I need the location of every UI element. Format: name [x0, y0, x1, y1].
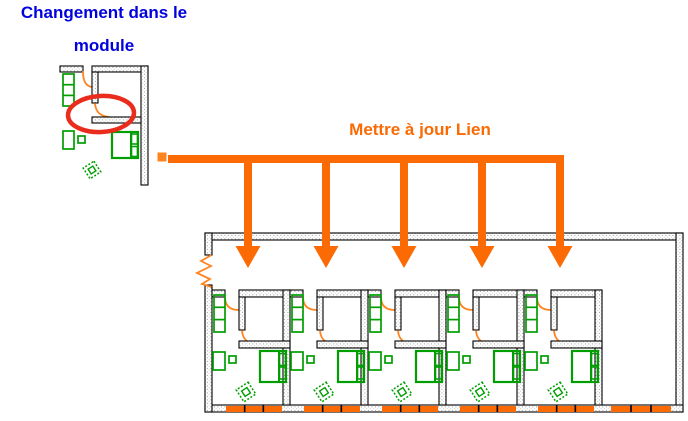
plant — [390, 380, 414, 404]
floorplan-diagram-canvas — [0, 0, 688, 421]
window-marker — [158, 153, 166, 161]
bed — [416, 351, 442, 382]
entry-door — [303, 297, 317, 310]
diagram-stage: Changement dans le module Mettre à jour … — [0, 0, 688, 421]
window-band — [304, 406, 360, 413]
update-link-bar — [168, 155, 564, 163]
plant — [468, 380, 492, 404]
desk — [291, 352, 314, 370]
module-plan-5 — [524, 290, 602, 413]
module-plan-2 — [290, 290, 368, 413]
wall-break-symbol — [197, 255, 212, 287]
update-arrow — [314, 162, 339, 268]
plant — [546, 380, 570, 404]
update-arrow — [236, 162, 261, 268]
update-arrow — [470, 162, 495, 268]
module-plan-3 — [368, 290, 446, 413]
entry-door — [225, 297, 239, 310]
wardrobe — [292, 295, 303, 332]
update-arrow — [548, 162, 573, 268]
bed — [260, 351, 286, 382]
bed — [338, 351, 364, 382]
entry-door — [83, 72, 92, 87]
module-plan-4 — [446, 290, 524, 413]
building-plan — [197, 233, 683, 413]
source-module-plan — [60, 66, 166, 185]
wardrobe — [63, 74, 74, 106]
entry-door — [459, 297, 473, 310]
entry-door — [537, 297, 551, 310]
desk — [369, 352, 392, 370]
window-band — [460, 406, 516, 413]
desk — [213, 352, 236, 370]
wardrobe — [448, 295, 459, 332]
window-band — [226, 406, 282, 413]
desk — [525, 352, 548, 370]
desk — [447, 352, 470, 370]
plant — [81, 159, 102, 180]
entry-door — [381, 297, 395, 310]
wardrobe — [370, 295, 381, 332]
bed — [112, 132, 138, 158]
wardrobe — [526, 295, 537, 332]
module-plan-1 — [212, 290, 290, 413]
desk — [63, 131, 85, 149]
plant — [312, 380, 336, 404]
plant — [234, 380, 258, 404]
window-band — [538, 406, 594, 413]
update-arrow — [392, 162, 417, 268]
bed — [494, 351, 520, 382]
update-arrows — [168, 155, 573, 268]
bed — [572, 351, 598, 382]
wardrobe — [214, 295, 225, 332]
window-band-right — [611, 406, 671, 413]
bathroom-door — [95, 104, 109, 117]
window-band — [382, 406, 438, 413]
